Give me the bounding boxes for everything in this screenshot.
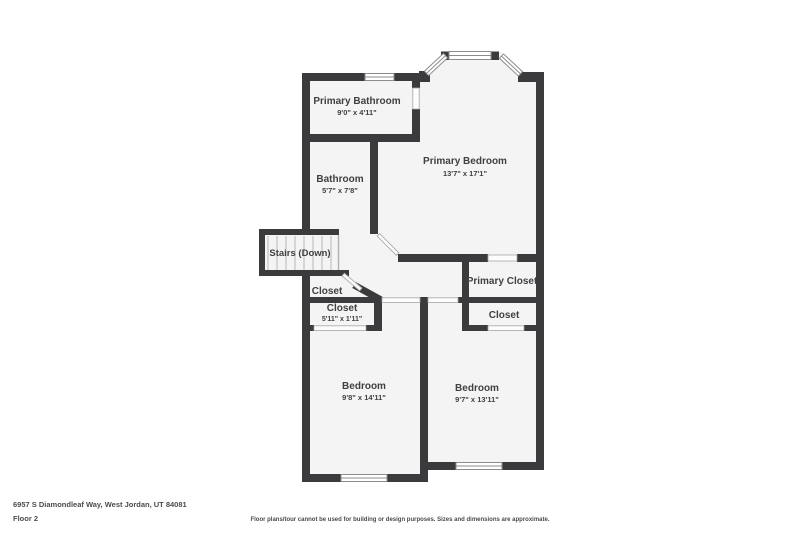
- room-label-primary-bedroom: Primary Bedroom: [423, 156, 507, 167]
- floor-plan-canvas: Primary Bathroom 9'0" x 4'11" Bathroom 5…: [0, 0, 800, 533]
- room-dims-bedroom-right: 9'7" x 13'11": [455, 395, 499, 404]
- room-floors: [259, 52, 544, 482]
- room-dims-primary-bathroom: 9'0" x 4'11": [337, 108, 377, 117]
- room-dims-primary-bedroom: 13'7" x 17'1": [443, 169, 487, 178]
- floor-plan-page: Primary Bathroom 9'0" x 4'11" Bathroom 5…: [0, 0, 800, 533]
- room-label-closet-right: Closet: [489, 310, 520, 321]
- primary-bathroom-window: [365, 74, 394, 81]
- room-label-stairs: Stairs (Down): [269, 248, 330, 259]
- room-label-primary-closet: Primary Closet: [467, 276, 538, 287]
- room-label-bathroom: Bathroom: [316, 174, 363, 185]
- bedroom-left-window: [341, 475, 387, 482]
- room-dims-closet-small: 5'11" x 1'11": [322, 316, 362, 323]
- room-dims-bathroom: 5'7" x 7'8": [322, 186, 358, 195]
- property-address: 6957 S Diamondleaf Way, West Jordan, UT …: [13, 500, 187, 509]
- room-label-closet-small: Closet: [327, 303, 358, 314]
- bay-window-top: [449, 52, 491, 60]
- room-dims-bedroom-left: 9'8" x 14'11": [342, 393, 386, 402]
- room-label-bedroom-right: Bedroom: [455, 383, 499, 394]
- disclaimer-text: Floor plans/tour cannot be used for buil…: [0, 517, 800, 523]
- bedroom-right-window: [456, 463, 502, 470]
- room-label-bedroom-left: Bedroom: [342, 381, 386, 392]
- room-label-primary-bathroom: Primary Bathroom: [313, 96, 400, 107]
- room-label-hall-closet: Closet: [312, 286, 343, 297]
